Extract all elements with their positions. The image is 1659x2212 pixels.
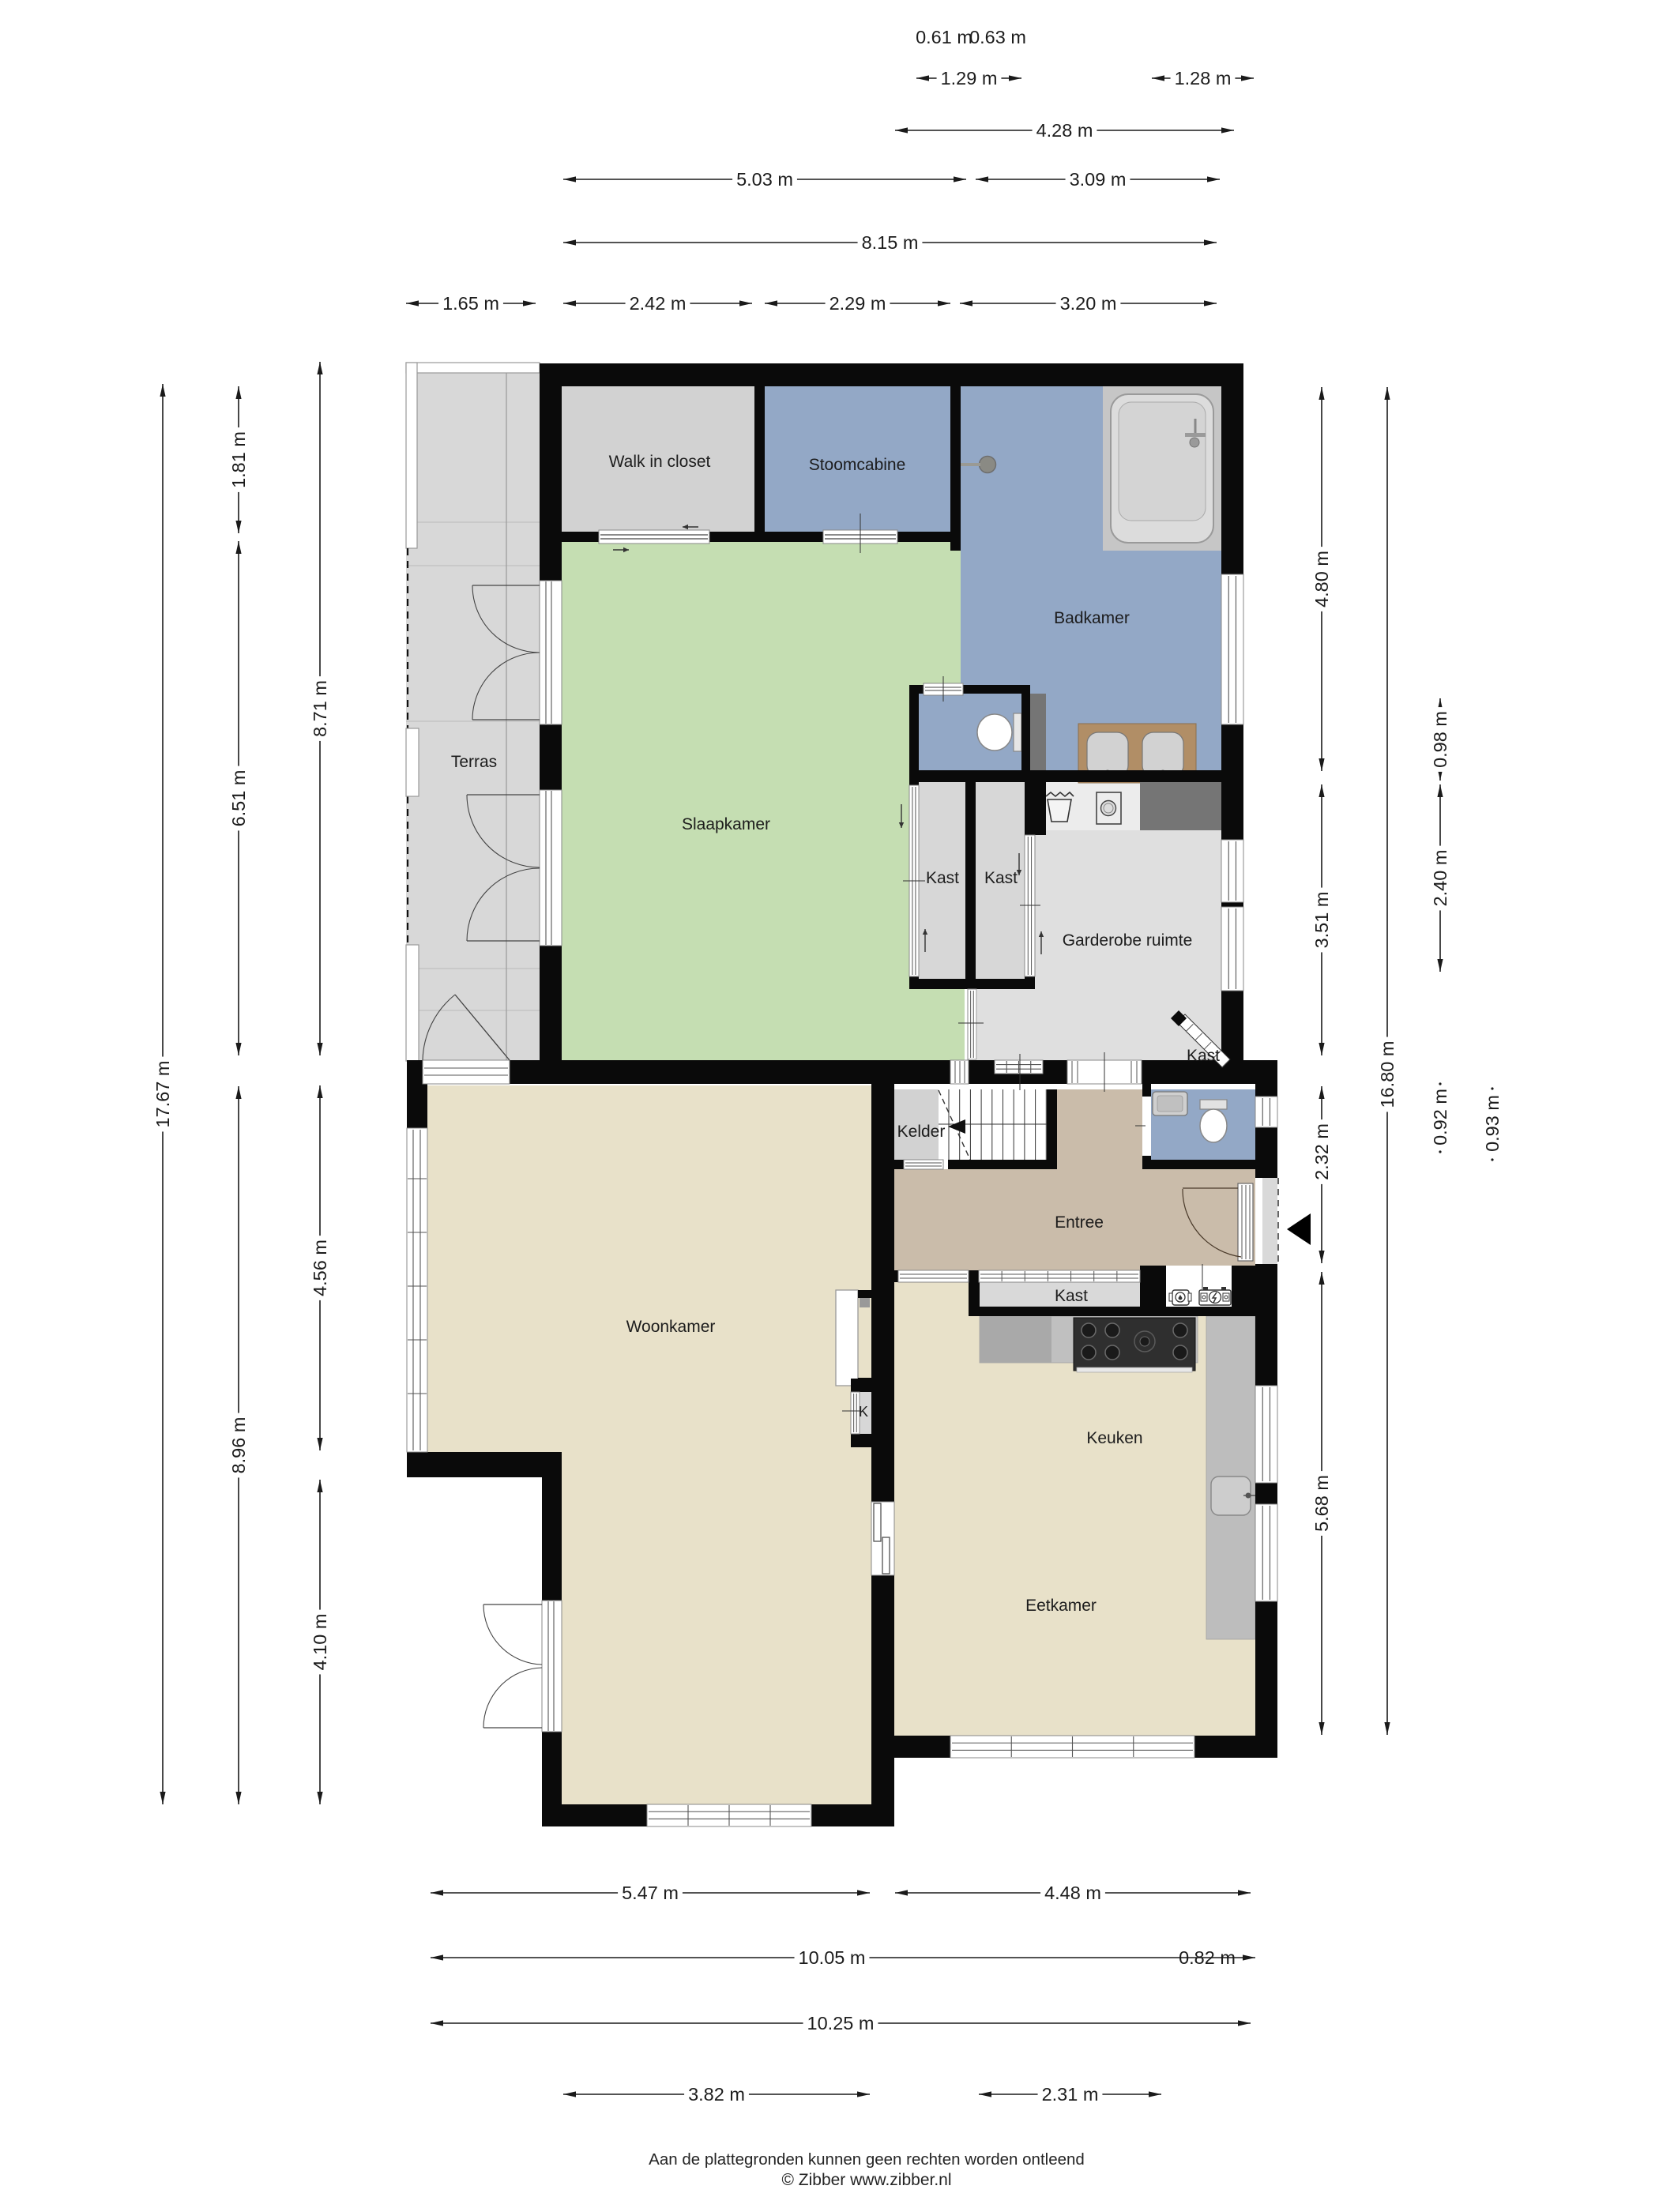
svg-text:Aan de plattegronden kunnen ge: Aan de plattegronden kunnen geen rechten… [649, 2150, 1085, 2169]
svg-text:3.82 m: 3.82 m [688, 2084, 745, 2105]
svg-text:17.67 m: 17.67 m [152, 1061, 173, 1128]
svg-text:5.03 m: 5.03 m [736, 169, 793, 190]
svg-text:1.29 m: 1.29 m [941, 68, 998, 88]
svg-text:0.63 m: 0.63 m [969, 27, 1026, 47]
svg-text:3.09 m: 3.09 m [1070, 169, 1127, 190]
svg-text:Terras: Terras [451, 753, 497, 771]
svg-text:0.98 m: 0.98 m [1430, 711, 1450, 768]
svg-text:Kast: Kast [984, 869, 1018, 887]
svg-text:2.29 m: 2.29 m [829, 293, 886, 314]
svg-text:Kast: Kast [926, 869, 959, 887]
svg-text:3.51 m: 3.51 m [1311, 892, 1332, 949]
svg-text:8.15 m: 8.15 m [862, 232, 919, 253]
svg-text:Kast: Kast [1055, 1287, 1088, 1305]
svg-text:0.82 m: 0.82 m [1179, 1947, 1236, 1968]
svg-text:3.20 m: 3.20 m [1060, 293, 1117, 314]
svg-text:4.28 m: 4.28 m [1036, 120, 1093, 141]
svg-text:0.93 m: 0.93 m [1482, 1095, 1503, 1152]
svg-text:Stoomcabine: Stoomcabine [809, 456, 906, 474]
svg-text:0.92 m: 0.92 m [1430, 1089, 1450, 1145]
svg-text:Slaapkamer: Slaapkamer [682, 815, 770, 833]
svg-text:10.05 m: 10.05 m [799, 1947, 866, 1968]
svg-text:Keuken: Keuken [1086, 1429, 1142, 1447]
svg-text:2.42 m: 2.42 m [630, 293, 687, 314]
svg-text:4.48 m: 4.48 m [1044, 1883, 1101, 1903]
svg-text:6.51 m: 6.51 m [228, 770, 249, 827]
svg-text:8.96 m: 8.96 m [228, 1417, 249, 1474]
svg-text:Kast: Kast [1187, 1047, 1220, 1065]
svg-text:4.10 m: 4.10 m [310, 1614, 330, 1671]
svg-text:Walk in closet: Walk in closet [609, 453, 711, 471]
svg-text:4.80 m: 4.80 m [1311, 551, 1332, 608]
svg-text:4.56 m: 4.56 m [310, 1240, 330, 1296]
svg-text:Eetkamer: Eetkamer [1025, 1597, 1097, 1615]
svg-text:Entree: Entree [1055, 1213, 1104, 1232]
svg-text:2.32 m: 2.32 m [1311, 1123, 1332, 1180]
svg-text:© Zibber www.zibber.nl: © Zibber www.zibber.nl [781, 2171, 951, 2189]
svg-text:1.65 m: 1.65 m [442, 293, 499, 314]
svg-text:5.68 m: 5.68 m [1311, 1475, 1332, 1532]
svg-text:0.61 m: 0.61 m [916, 27, 972, 47]
svg-text:K: K [859, 1404, 868, 1420]
svg-text:Badkamer: Badkamer [1054, 609, 1130, 627]
svg-text:Garderobe ruimte: Garderobe ruimte [1063, 931, 1193, 950]
svg-text:8.71 m: 8.71 m [310, 680, 330, 737]
svg-text:Woonkamer: Woonkamer [626, 1318, 716, 1336]
svg-text:10.25 m: 10.25 m [807, 2013, 875, 2033]
svg-text:2.31 m: 2.31 m [1042, 2084, 1099, 2105]
svg-text:Kelder: Kelder [897, 1123, 946, 1141]
svg-text:1.81 m: 1.81 m [228, 431, 249, 488]
svg-text:1.28 m: 1.28 m [1175, 68, 1232, 88]
svg-text:5.47 m: 5.47 m [622, 1883, 679, 1903]
svg-text:16.80 m: 16.80 m [1377, 1041, 1398, 1108]
svg-text:2.40 m: 2.40 m [1430, 850, 1450, 907]
